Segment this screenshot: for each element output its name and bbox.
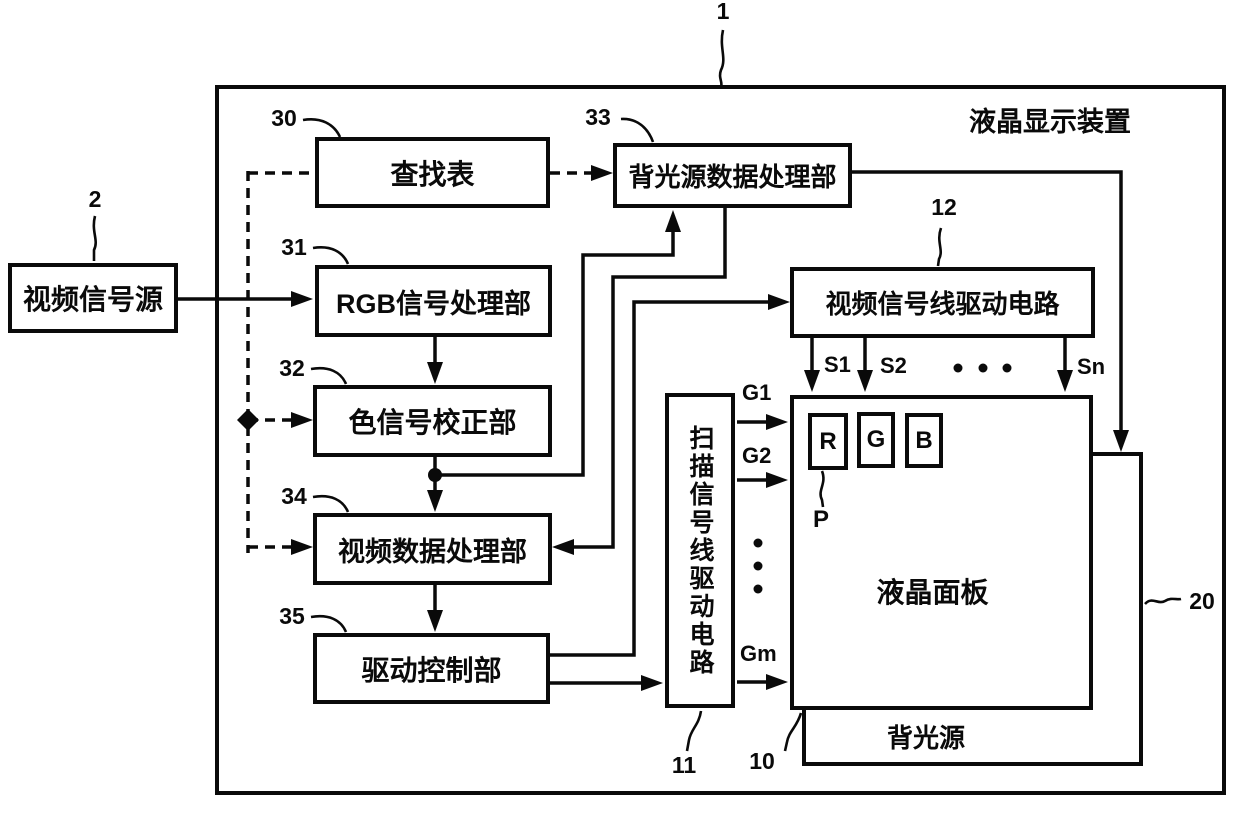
leader-31: [313, 247, 348, 264]
label-s2: S2: [880, 353, 907, 379]
scan-driver-box: 扫描信号线驱动电路: [665, 393, 735, 708]
arrow-s2: [857, 370, 873, 392]
arrow-into-33-bottom: [665, 210, 681, 232]
arrow-s1: [804, 370, 820, 392]
leader-10: [785, 713, 801, 751]
video-source-box: 视频信号源: [8, 263, 178, 333]
arrow-into-31: [291, 291, 313, 307]
arrow-g1: [766, 414, 788, 430]
arrow-into-backlight: [1113, 430, 1129, 452]
source-driver-box: 视频信号线驱动电路: [790, 267, 1095, 338]
arrow-into-35-top: [427, 610, 443, 632]
leader-20: [1145, 599, 1181, 604]
junction-diamond: [237, 409, 259, 431]
s-line-ellipsis: [954, 364, 1012, 373]
leader-11: [687, 711, 701, 751]
label-g1: G1: [742, 380, 771, 406]
ref-label-35: 35: [274, 603, 310, 630]
arrow-into-33-from-30: [591, 165, 613, 181]
subpixel-r-box: R: [808, 413, 848, 470]
ref-label-31: 31: [276, 234, 312, 261]
arrow-g2: [766, 472, 788, 488]
drive-control-box: 驱动控制部: [313, 633, 550, 704]
ref-label-30: 30: [266, 105, 302, 132]
g-line-ellipsis: [754, 539, 763, 594]
patent-figure-lcd-device: 液晶显示装置 1 背光源 20 液晶面板 10 R G B P 视频信号源 2 …: [0, 0, 1240, 828]
ref-label-1: 1: [708, 0, 738, 25]
ref-label-20: 20: [1183, 588, 1221, 615]
ref-label-34: 34: [276, 483, 312, 510]
leader-12: [938, 228, 941, 266]
line-35-to-12: [548, 302, 769, 655]
subpixel-g-box: G: [857, 412, 895, 468]
arrow-into-11: [641, 675, 663, 691]
figure-title: 液晶显示装置: [940, 100, 1160, 134]
arrow-into-32-left: [291, 412, 313, 428]
label-g2: G2: [742, 443, 771, 469]
ref-label-11: 11: [666, 752, 702, 779]
leader-32: [311, 368, 346, 384]
subpixel-b-box: B: [905, 413, 943, 468]
leader-33: [621, 119, 653, 142]
ref-label-33: 33: [580, 104, 616, 131]
rgb-signal-proc-box: RGB信号处理部: [315, 265, 552, 337]
label-gm: Gm: [740, 641, 777, 667]
ref-label-32: 32: [274, 355, 310, 382]
label-sn: Sn: [1077, 354, 1105, 380]
leader-p: [821, 471, 824, 507]
arrow-into-34-right: [552, 539, 574, 555]
junction-dot: [428, 468, 442, 482]
leader-34: [313, 496, 348, 512]
leader-2: [94, 216, 96, 261]
arrow-into-34-top: [427, 490, 443, 512]
ref-label-10: 10: [744, 748, 780, 775]
ref-label-12: 12: [924, 194, 964, 221]
leader-1: [720, 30, 723, 87]
arrow-into-12: [768, 294, 790, 310]
leader-35: [311, 616, 346, 632]
backlight-data-proc-box: 背光源数据处理部: [613, 143, 852, 208]
pixel-ref-label: P: [813, 506, 829, 534]
arrow-sn: [1057, 370, 1073, 392]
lookup-table-box: 查找表: [315, 137, 550, 208]
arrow-gm: [766, 674, 788, 690]
leader-30: [303, 119, 340, 137]
video-data-proc-box: 视频数据处理部: [313, 513, 552, 585]
arrow-into-34-left: [291, 539, 313, 555]
ref-label-2: 2: [80, 186, 110, 213]
arrow-into-32-top: [427, 362, 443, 384]
color-correction-box: 色信号校正部: [313, 385, 552, 457]
label-s1: S1: [824, 352, 851, 378]
